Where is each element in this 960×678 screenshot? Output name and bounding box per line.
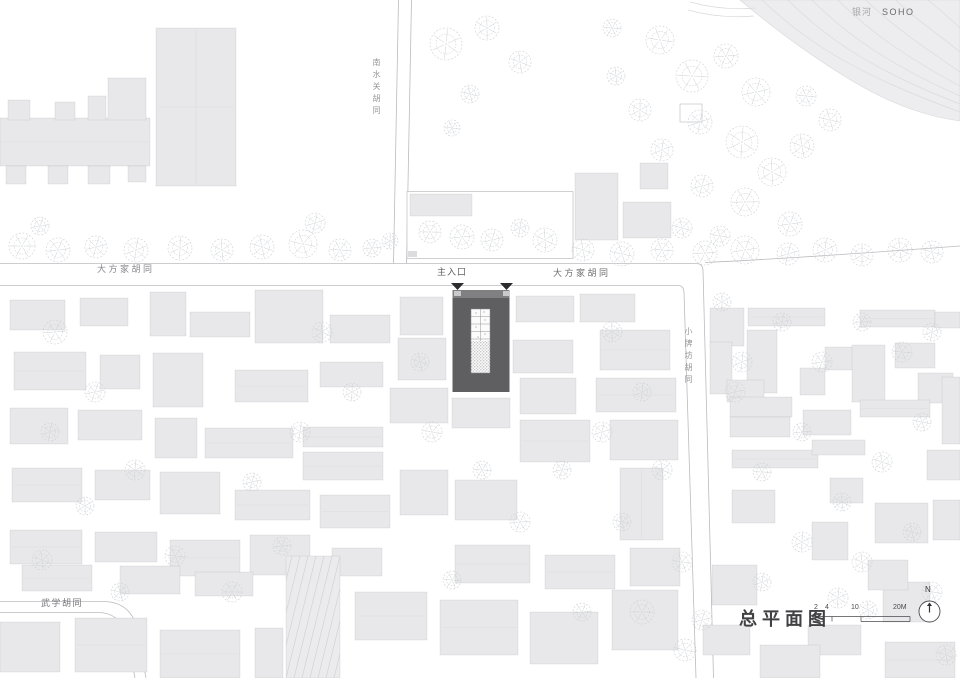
tree-icon [710, 226, 730, 246]
tree-icon [509, 51, 531, 73]
tree-icon [305, 213, 325, 233]
north-label: N [925, 585, 931, 594]
tree-icon [473, 461, 491, 479]
tree-icon [742, 78, 770, 106]
galaxy-soho-area [688, 0, 960, 121]
tree-icon [607, 67, 625, 85]
tree-icon [777, 243, 799, 265]
tree-icon [714, 44, 738, 68]
tree-icon [819, 109, 841, 131]
tree-icon [792, 532, 812, 552]
tree-icon [124, 238, 148, 262]
tree-icon [828, 588, 848, 608]
tree-icon [731, 236, 759, 264]
tree-icon [726, 126, 758, 158]
street-label-xiaopaifang-hutong: 小牌坊胡同 [683, 327, 694, 387]
tree-icon [778, 212, 802, 236]
tree-icon [211, 239, 233, 261]
tree-icon [46, 238, 70, 262]
tree-icon [289, 230, 317, 258]
tree-icon [651, 239, 673, 261]
tree-icon [382, 233, 398, 249]
street-label-dafangjia-hutong-east: 大方家胡同 [553, 266, 611, 279]
tree-icon [758, 158, 786, 186]
tree-icon [168, 236, 192, 260]
street-label-dafangjia-hutong-west: 大方家胡同 [97, 262, 155, 275]
tree-icon [430, 28, 462, 60]
galaxy-soho-label-en: SOHO [882, 7, 915, 17]
tree-icon [461, 85, 479, 103]
entrance-arrow-icon [500, 283, 513, 290]
tree-icon [444, 120, 460, 136]
tree-icon [693, 241, 717, 265]
tree-icon [610, 242, 634, 266]
tree-icon [85, 236, 107, 258]
tree-icon [363, 239, 381, 257]
tree-icon [243, 473, 261, 491]
tree-icon [646, 26, 674, 54]
entrance-arrow-icon [451, 283, 464, 290]
tree-icon [921, 241, 943, 263]
tree-icon [603, 19, 621, 37]
galaxy-soho-label: 银河SOHO [852, 5, 915, 18]
site-plan-canvas: 银河SOHO 南水关胡同 大方家胡同 主入口 大方家胡同 小牌坊胡同 武学胡同 … [0, 0, 960, 678]
project-building [451, 283, 513, 392]
tree-icon [672, 218, 692, 238]
scale-tick-20m: 20M [893, 604, 907, 611]
tree-icon [651, 139, 673, 161]
tree-icon [676, 60, 708, 92]
tree-icon [796, 86, 816, 106]
tree-icon [851, 244, 873, 266]
main-entrance-label: 主入口 [437, 265, 467, 278]
galaxy-soho-label-cn: 银河 [852, 7, 872, 17]
tree-icon [572, 239, 594, 261]
scale-tick-2: 2 [814, 604, 818, 611]
tree-icon [553, 461, 571, 479]
tree-icon [790, 134, 814, 158]
tree-icon [9, 233, 35, 259]
tree-icon [813, 238, 837, 262]
tree-icon [475, 16, 499, 40]
tree-icon [872, 452, 892, 472]
site-plan-drawing [0, 0, 960, 678]
tree-icon [250, 235, 274, 259]
tree-icon [629, 99, 651, 121]
tree-icon [85, 382, 105, 402]
tree-icon [329, 239, 351, 261]
street-label-wuxue-hutong: 武学胡同 [41, 596, 83, 609]
tree-icon [422, 422, 442, 442]
tree-icon [592, 422, 612, 442]
tree-icon [691, 175, 713, 197]
north-arrow-icon [919, 601, 940, 622]
scale-tick-4: 4 [825, 604, 829, 611]
street-label-nanshuiguan-hutong: 南水关胡同 [371, 58, 382, 118]
tree-icon [731, 188, 759, 216]
scale-tick-10: 10 [851, 604, 859, 611]
tree-icon [692, 610, 712, 630]
tree-icon [31, 217, 49, 235]
